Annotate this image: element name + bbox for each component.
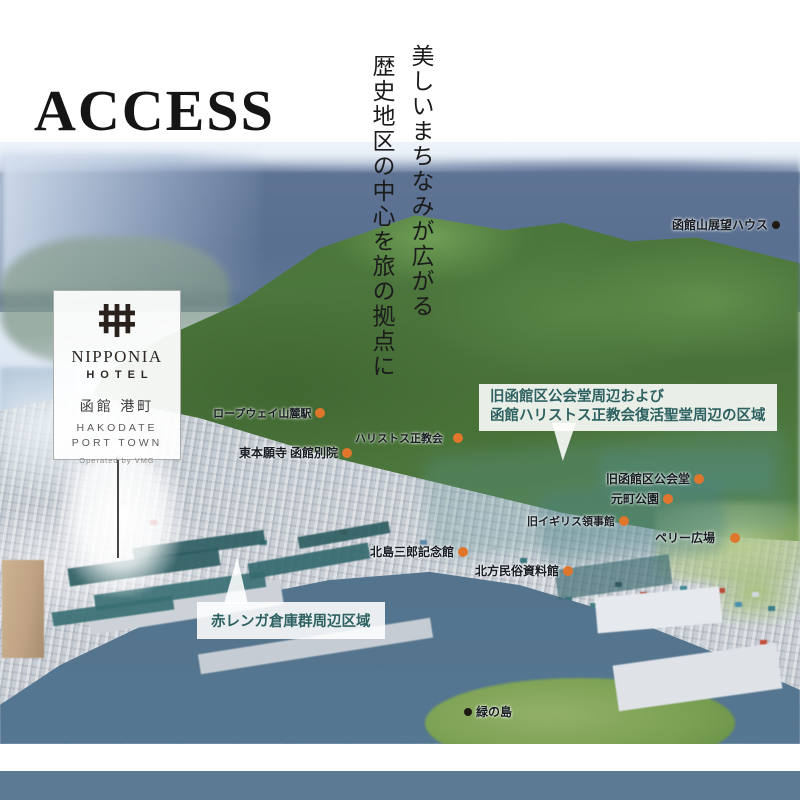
footer-bar — [0, 771, 800, 800]
poi-old-british-consulate: 旧イギリス領事館 — [527, 513, 629, 529]
black-marker-dot — [772, 221, 780, 229]
rooftops-texture — [0, 142, 7, 147]
hotel-tower-shape — [2, 560, 44, 658]
poi-text: 北島三郎記念館 — [370, 543, 454, 560]
poi-text: ペリー広場 — [655, 529, 715, 546]
tagline-vertical-1: 美しいまちなみが広がる — [403, 44, 437, 319]
poi-text: 緑の島 — [476, 703, 512, 720]
poi-text: ハリストス正教会 — [355, 430, 443, 446]
hotel-name-jp: 函館 港町 — [54, 396, 180, 416]
poi-text: 旧函館区公会堂 — [606, 470, 690, 487]
poi-text: 元町公園 — [611, 490, 659, 507]
poi-old-public-hall: 旧函館区公会堂 — [606, 470, 704, 487]
brand-sub: HOTEL — [54, 369, 180, 381]
orange-marker-dot — [619, 516, 629, 526]
orange-marker-dot — [663, 494, 673, 504]
orange-marker-dot — [730, 533, 740, 543]
area-label-line: 赤レンガ倉庫群周辺区域 — [211, 614, 371, 630]
poi-kitajima-saburo-museum: 北島三郎記念館 — [370, 543, 468, 560]
orange-marker-dot — [342, 448, 352, 458]
hotel-name-en-2: PORT TOWN — [54, 437, 180, 449]
orange-marker-dot — [563, 566, 573, 576]
orange-marker-dot — [694, 474, 704, 484]
poi-green-island: 緑の島 — [464, 703, 512, 720]
poi-ropeway-sanroku-station: ロープウェイ山麓駅 — [213, 405, 325, 421]
hotel-name-en-1: HAKODATE — [54, 422, 180, 434]
orange-marker-dot — [315, 408, 325, 418]
poi-text: 北方民俗資料館 — [475, 562, 559, 579]
poi-haristos-orthodox-church: ハリストス正教会 — [355, 430, 463, 446]
page-title: ACCESS — [34, 77, 275, 144]
black-marker-dot — [464, 708, 472, 716]
poi-perry-plaza: ペリー広場 — [655, 529, 740, 546]
operated-by: Operated by VMG — [54, 456, 180, 465]
poi-northern-peoples-museum: 北方民俗資料館 — [475, 562, 573, 579]
brand-name: NIPPONIA — [54, 347, 180, 367]
poi-text: ロープウェイ山麓駅 — [213, 405, 311, 421]
area-label-line: 函館ハリストス正教会復活聖堂周辺の区域 — [490, 407, 766, 426]
area-label-historic-district: 旧函館区公会堂周辺および 函館ハリストス正教会復活聖堂周辺の区域 — [479, 384, 777, 431]
poi-text: 東本願寺 函館別院 — [239, 444, 338, 461]
area-label-red-brick-warehouses: 赤レンガ倉庫群周辺区域 — [197, 602, 385, 639]
poi-higashi-honganji-betsuin: 東本願寺 函館別院 — [239, 444, 352, 461]
tagline-vertical-2: 歴史地区の中心を旅の拠点に — [364, 54, 398, 379]
orange-marker-dot — [458, 547, 468, 557]
poi-text: 函館山展望ハウス — [672, 216, 768, 233]
poi-hakodateyama-observation-house: 函館山展望ハウス — [672, 216, 780, 233]
poi-motomachi-park: 元町公園 — [611, 490, 673, 507]
hotel-brand-card: NIPPONIA HOTEL 函館 港町 HAKODATE PORT TOWN … — [53, 290, 181, 460]
orange-marker-dot — [453, 433, 463, 443]
hotel-location-glow — [58, 442, 183, 597]
hotel-leader-line — [117, 455, 119, 558]
poi-text: 旧イギリス領事館 — [527, 513, 615, 529]
nipponia-lattice-icon — [54, 304, 180, 343]
area-label-line: 旧函館区公会堂周辺および — [490, 388, 766, 407]
